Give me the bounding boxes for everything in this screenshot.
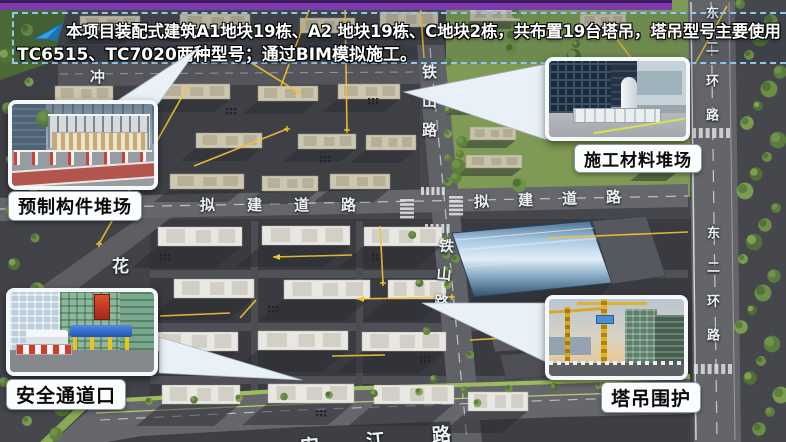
road-label-hua: 花 xyxy=(112,252,129,277)
glass-building xyxy=(625,309,657,365)
far-building xyxy=(636,71,682,95)
blue-arrow-icon xyxy=(34,20,64,42)
blue-canopy xyxy=(70,325,132,337)
crane-mast xyxy=(565,307,570,365)
banner-text-line1: 本项目装配式建筑A1地块19栋、A2 地块19栋、C地块2栋，共布置19台塔吊，… xyxy=(66,18,781,42)
glass-building xyxy=(655,315,684,365)
construction-site-slide: 铁山路 铁山路 东二环路 东二环路 拟建道路 拟建道路 花 冲 安江路 本项目装… xyxy=(0,0,786,442)
fence-panels xyxy=(573,108,661,123)
road-label-proposed-road-west: 拟建道路 xyxy=(200,194,388,215)
precast-yard-photo xyxy=(8,100,158,190)
safety-entrance-photo xyxy=(6,288,158,376)
safety-entrance-label: 安全通道口 xyxy=(6,379,126,410)
precast-elements xyxy=(52,132,148,152)
material-yard-label: 施工材料堆场 xyxy=(574,144,702,173)
precast-yard-label: 预制构件堆场 xyxy=(8,191,142,221)
red-hoist xyxy=(94,294,110,320)
crane-enclosure-photo xyxy=(545,295,688,380)
slide-header-bar xyxy=(0,0,672,10)
material-yard-photo xyxy=(545,57,690,141)
horizon-buildings xyxy=(549,337,591,355)
crane-cab xyxy=(596,315,614,324)
crane-mast xyxy=(601,299,607,365)
road-label-tieshan-north: 铁山路 xyxy=(419,64,440,151)
road-label-chong: 冲 xyxy=(90,66,105,87)
site-fence xyxy=(549,361,684,365)
road-label-east-ring-south: 东二环路 xyxy=(702,226,721,362)
striped-barriers xyxy=(16,344,72,355)
crane-enclosure-label: 塔吊围护 xyxy=(601,382,701,413)
banner-text-line2: TC6515、TC7020两种型号；通过BIM模拟施工。 xyxy=(17,40,417,65)
scaffold-building xyxy=(549,61,611,113)
crane-jib xyxy=(577,302,647,305)
